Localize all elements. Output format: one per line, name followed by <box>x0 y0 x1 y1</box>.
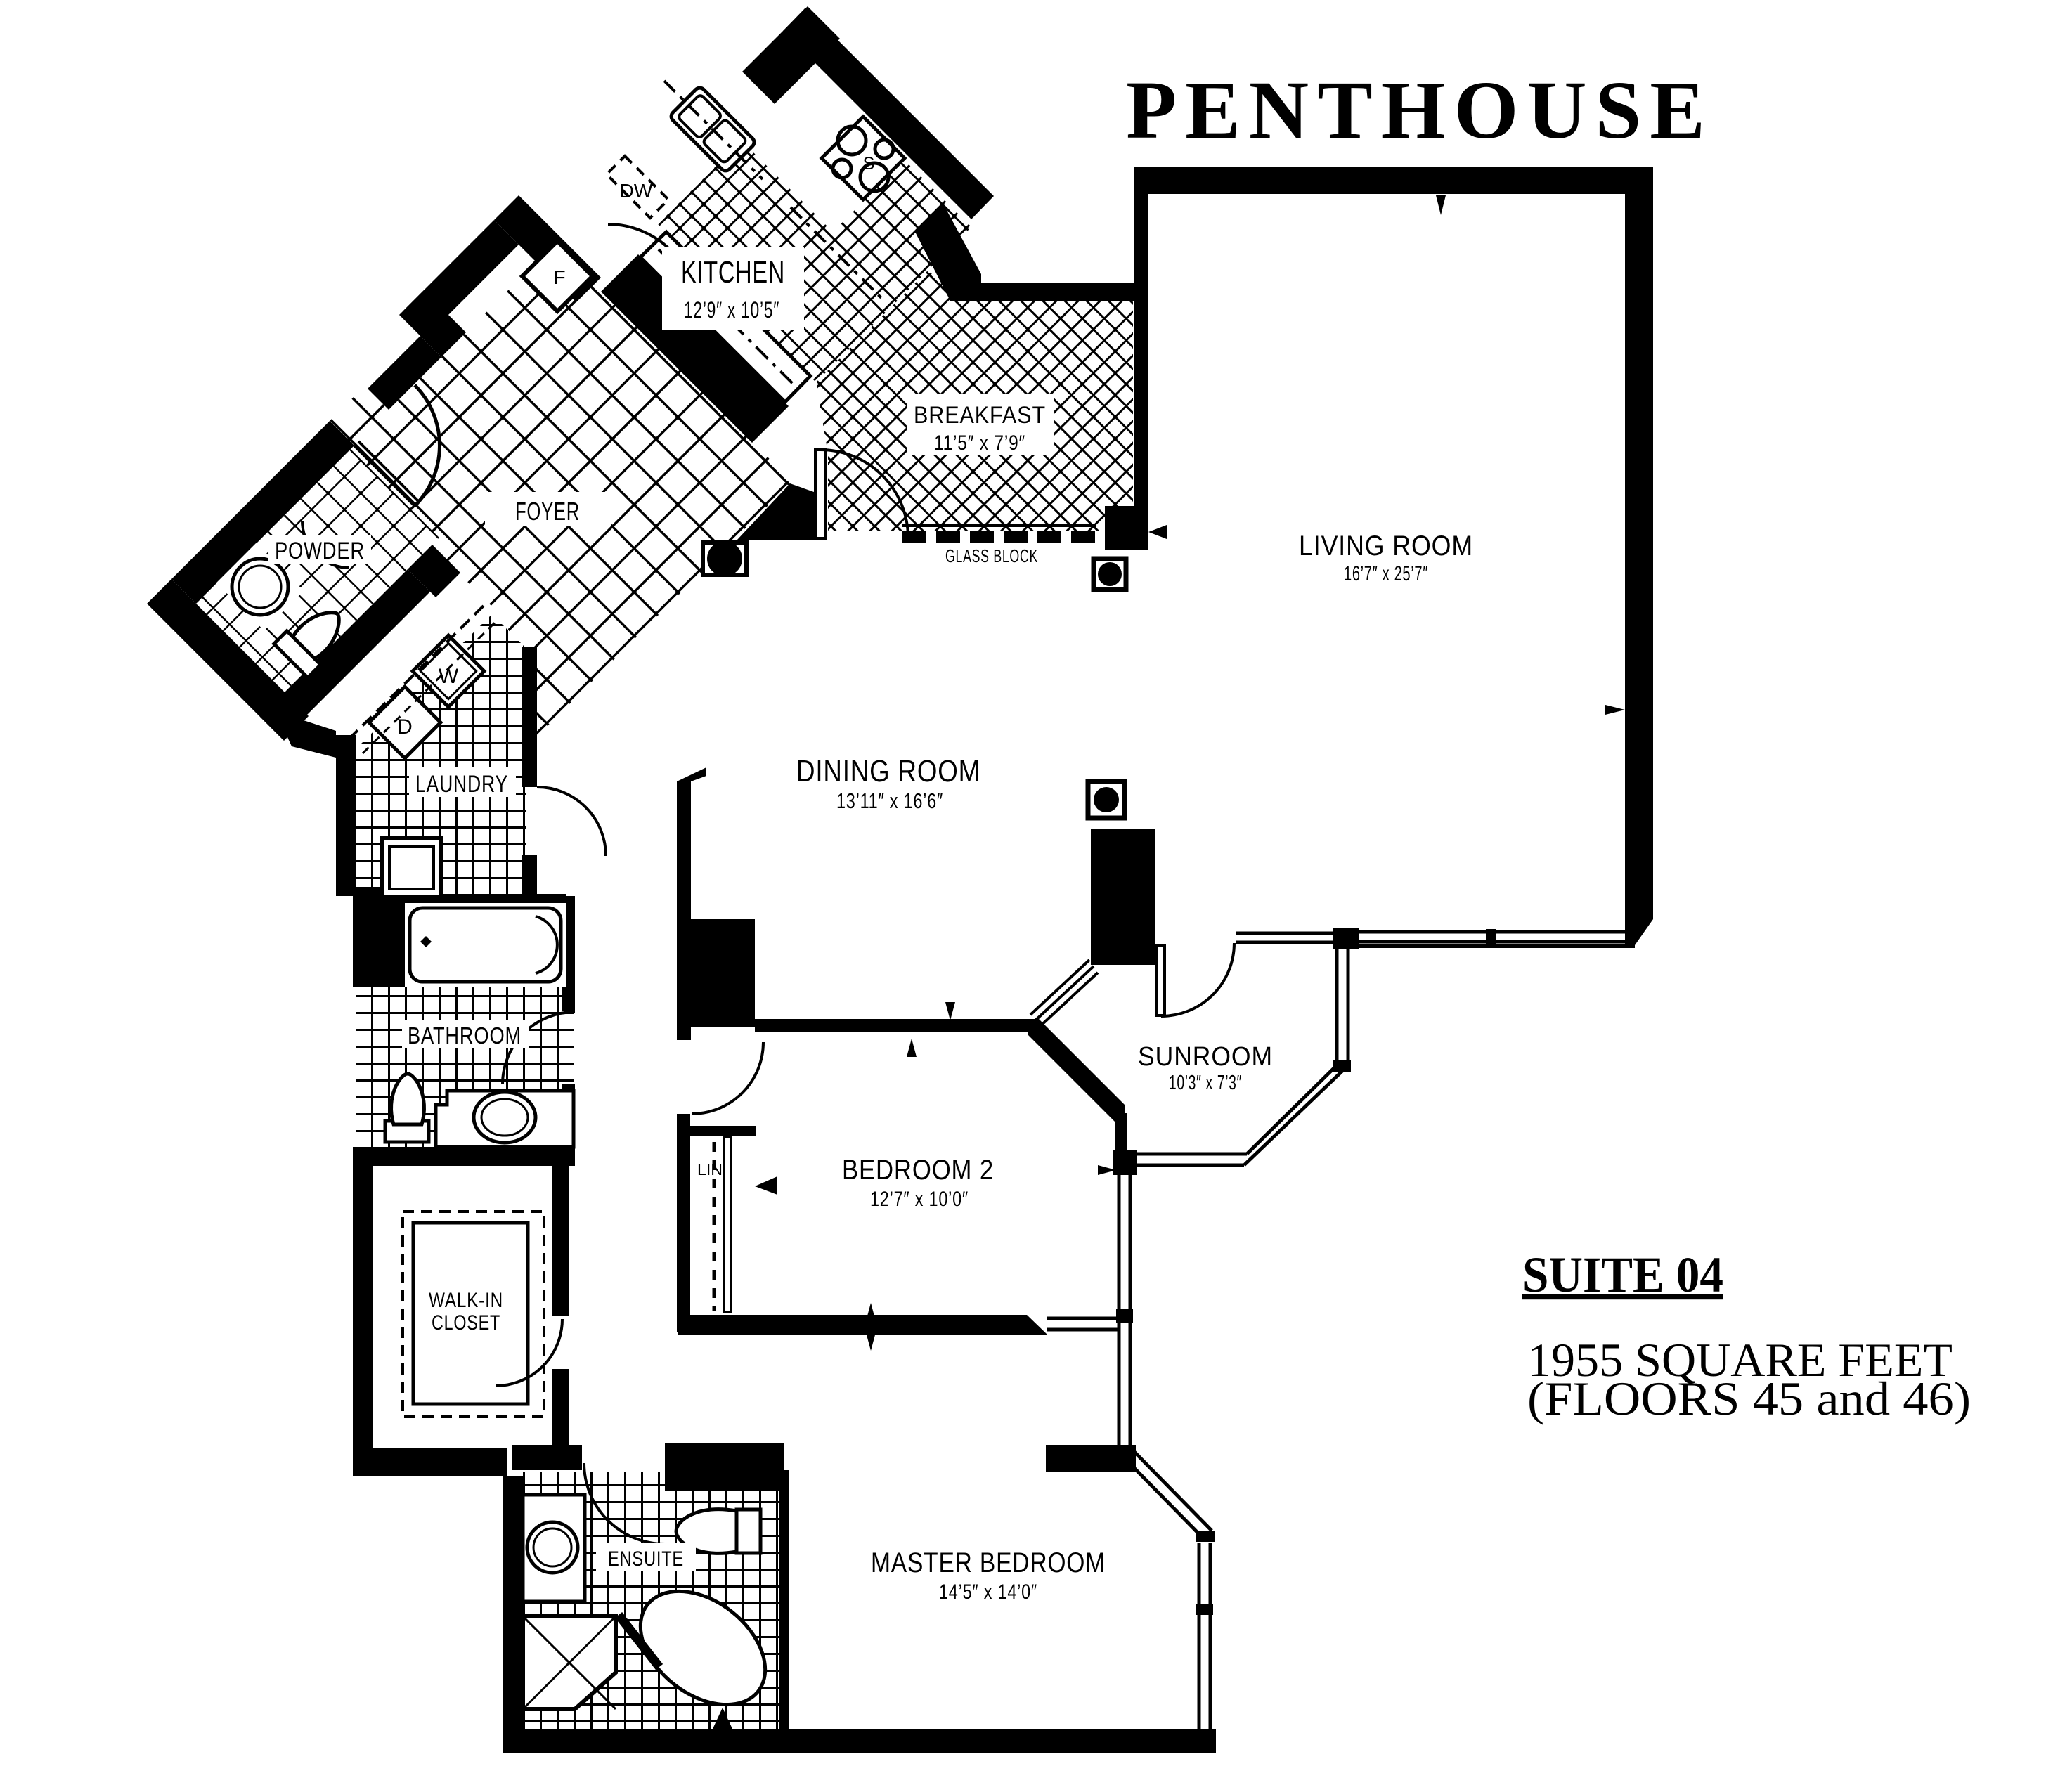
svg-text:SUNROOM: SUNROOM <box>1138 1042 1273 1072</box>
svg-text:LAUNDRY: LAUNDRY <box>415 771 508 798</box>
svg-text:SUITE 04: SUITE 04 <box>1522 1247 1723 1303</box>
svg-text:12’9″ x 10’5″: 12’9″ x 10’5″ <box>684 297 779 323</box>
svg-text:CLOSET: CLOSET <box>432 1311 500 1335</box>
svg-text:PENTHOUSE: PENTHOUSE <box>1126 64 1714 156</box>
svg-text:S: S <box>863 154 875 174</box>
svg-text:WALK-IN: WALK-IN <box>429 1289 503 1312</box>
svg-text:10’3″ x 7’3″: 10’3″ x 7’3″ <box>1169 1072 1242 1094</box>
svg-text:DW: DW <box>620 180 653 202</box>
svg-text:D: D <box>397 715 413 739</box>
svg-text:BREAKFAST: BREAKFAST <box>914 402 1046 429</box>
svg-text:14’5″ x 14’0″: 14’5″ x 14’0″ <box>939 1580 1037 1604</box>
svg-text:POWDER: POWDER <box>275 538 365 564</box>
svg-text:KITCHEN: KITCHEN <box>681 255 785 290</box>
svg-text:MASTER BEDROOM: MASTER BEDROOM <box>871 1547 1106 1578</box>
svg-text:16’7″ x 25’7″: 16’7″ x 25’7″ <box>1344 562 1428 585</box>
svg-text:ENSUITE: ENSUITE <box>608 1547 684 1571</box>
svg-text:DINING ROOM: DINING ROOM <box>796 754 980 788</box>
svg-text:F: F <box>553 266 565 288</box>
svg-text:12’7″ x 10’0″: 12’7″ x 10’0″ <box>870 1188 969 1211</box>
svg-text:GLASS BLOCK: GLASS BLOCK <box>945 545 1038 566</box>
svg-text:LIN: LIN <box>697 1160 723 1179</box>
svg-text:(FLOORS 45 and 46): (FLOORS 45 and 46) <box>1527 1372 1971 1425</box>
svg-text:BATHROOM: BATHROOM <box>408 1022 522 1048</box>
svg-text:11’5″ x 7’9″: 11’5″ x 7’9″ <box>934 431 1025 455</box>
svg-text:BEDROOM 2: BEDROOM 2 <box>842 1155 994 1186</box>
svg-text:13’11″ x 16’6″: 13’11″ x 16’6″ <box>836 788 943 813</box>
svg-text:FOYER: FOYER <box>515 497 580 526</box>
svg-text:LIVING ROOM: LIVING ROOM <box>1299 531 1473 561</box>
